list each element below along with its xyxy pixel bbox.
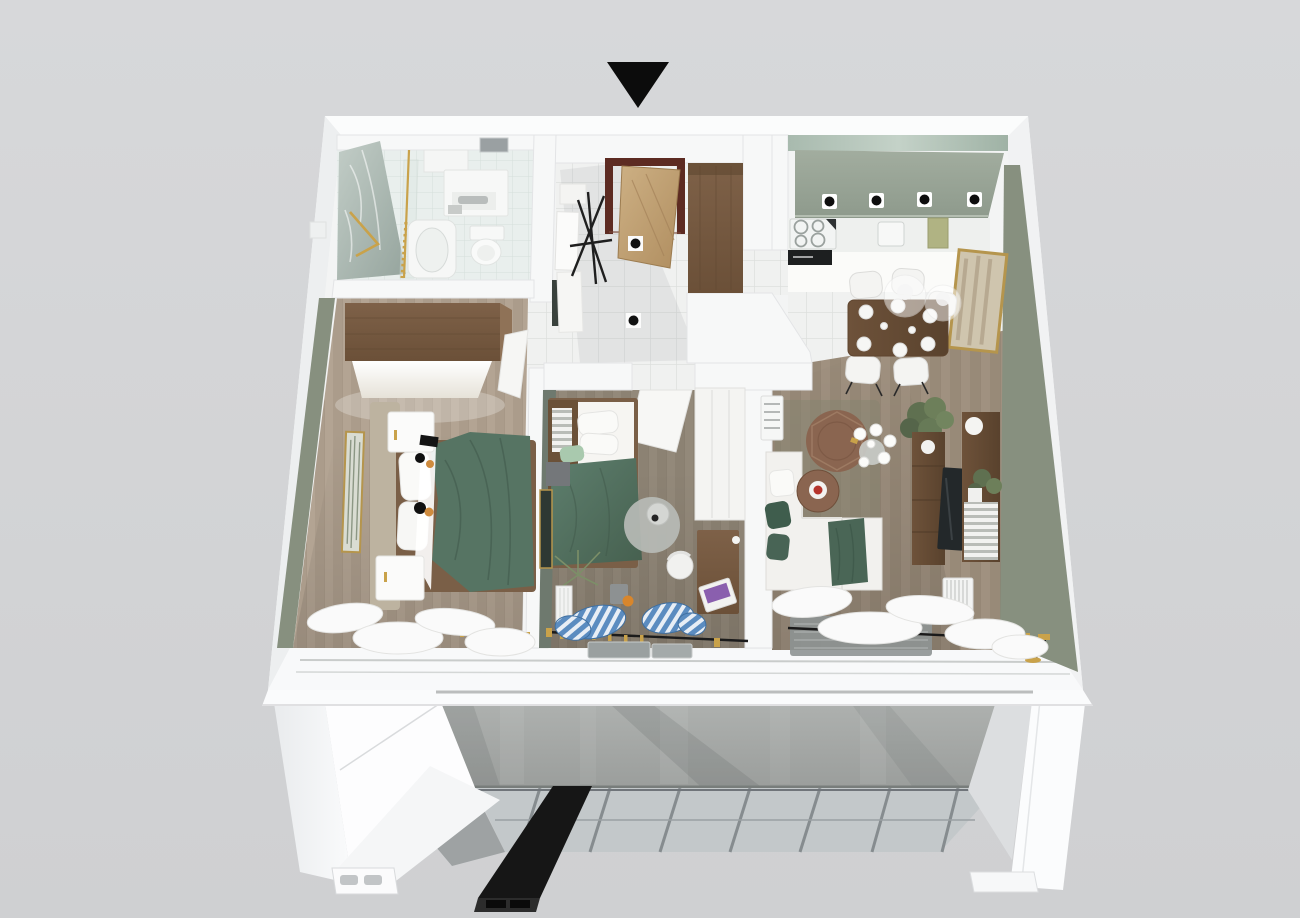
door-frame-lintel (605, 158, 685, 166)
hall-kitchen-wall (743, 135, 772, 250)
wall-notch (310, 222, 326, 238)
gold-lamp (426, 460, 434, 468)
profile-slot (340, 875, 358, 885)
green-pillow (764, 500, 792, 530)
panel (557, 272, 583, 333)
profile-slot (364, 875, 382, 885)
master-wardrobe (345, 303, 500, 361)
red-dessert (814, 486, 823, 495)
panel (555, 212, 579, 271)
wall-art (540, 490, 552, 568)
spot (872, 196, 882, 206)
streak (580, 696, 596, 784)
books (964, 502, 998, 560)
chair (893, 357, 929, 386)
gold-handle (384, 572, 387, 582)
wall-master-hall-upper (530, 135, 556, 302)
master-door-passage-floor (526, 302, 556, 368)
towel (458, 196, 488, 204)
air-conditioner (761, 396, 783, 440)
cup (870, 424, 882, 436)
black-vase (415, 453, 425, 463)
pillow (579, 433, 618, 456)
clip (640, 635, 644, 642)
sink (878, 222, 904, 246)
second-bedroom-top-wall-left (544, 363, 632, 390)
spot (629, 316, 639, 326)
spot (920, 195, 930, 205)
nightstand (376, 556, 424, 600)
beam-slot (486, 900, 506, 908)
cup (878, 452, 890, 464)
gold-handle (394, 430, 397, 440)
gold-lamp (425, 508, 434, 517)
green-pillow (766, 533, 791, 561)
floor-lamp-shade (647, 503, 669, 525)
mirror-panel (555, 212, 579, 271)
window-panel (652, 644, 692, 658)
plate (921, 337, 935, 351)
hall-shelf (560, 184, 586, 204)
mirror-panel-2 (557, 272, 583, 333)
pillow (577, 410, 619, 436)
streak (500, 696, 524, 784)
white-bowl (921, 440, 935, 454)
basket (448, 205, 462, 214)
rod-end (546, 628, 552, 637)
plate (893, 343, 907, 357)
wall-art (342, 432, 364, 553)
bathtub-inner (416, 228, 448, 272)
foliage (986, 478, 1002, 494)
toilet-seat (477, 245, 495, 261)
spot (825, 197, 835, 207)
orange-ball (623, 596, 634, 607)
right-ledge (970, 872, 1038, 892)
door-frame-jamb (605, 158, 613, 234)
chair (849, 270, 884, 299)
cup (867, 440, 875, 448)
ceiling-niche (480, 138, 508, 152)
floorplan-svg (0, 0, 1300, 918)
plate (857, 337, 871, 351)
curtain-billow (465, 628, 535, 656)
spot (970, 195, 980, 205)
black-decor (414, 502, 426, 514)
toilet-tank (470, 226, 504, 240)
door-handle-spot (628, 236, 643, 251)
pillows (577, 410, 619, 455)
second-bedroom-top-wall-right (695, 363, 812, 390)
pendant-bulb (897, 284, 913, 300)
streak (770, 696, 790, 784)
wardrobe-lit-front (352, 361, 492, 398)
floorplan-scene (0, 0, 1300, 918)
white-pot (968, 488, 982, 502)
wall-cabinet (424, 150, 468, 172)
white-wardrobe (695, 388, 745, 520)
cup (909, 327, 916, 334)
kitchen-west-wall (772, 135, 788, 250)
pendant-bulb (936, 292, 950, 306)
plate (859, 305, 873, 319)
floor-spotlight (626, 313, 641, 328)
cup (881, 323, 888, 330)
foliage (936, 411, 954, 429)
cup (884, 435, 896, 447)
bathroom-south-wall (332, 280, 534, 298)
sphere-lamp (965, 417, 983, 435)
beam-end-face (474, 898, 540, 912)
books (552, 408, 572, 452)
white-pillow (769, 469, 796, 497)
mug (732, 536, 740, 544)
second-bedroom-door-floor (632, 363, 695, 390)
cup (859, 457, 869, 467)
clip (624, 635, 628, 642)
kitchen-marble-strip (788, 135, 1008, 151)
hall-kitchen-passage-floor (743, 250, 788, 295)
floor-lamp-pole (652, 515, 659, 522)
beam-slot (510, 900, 530, 908)
chair (845, 355, 881, 385)
green-throw (828, 518, 868, 586)
dark-cube-table (546, 462, 570, 486)
cup (854, 428, 866, 440)
window-panel (588, 642, 650, 658)
olive-cabinet-door (928, 218, 948, 248)
spot (631, 239, 641, 249)
rod-end (714, 638, 720, 647)
curtain-billow (992, 635, 1048, 659)
teal-duvet (430, 432, 534, 592)
